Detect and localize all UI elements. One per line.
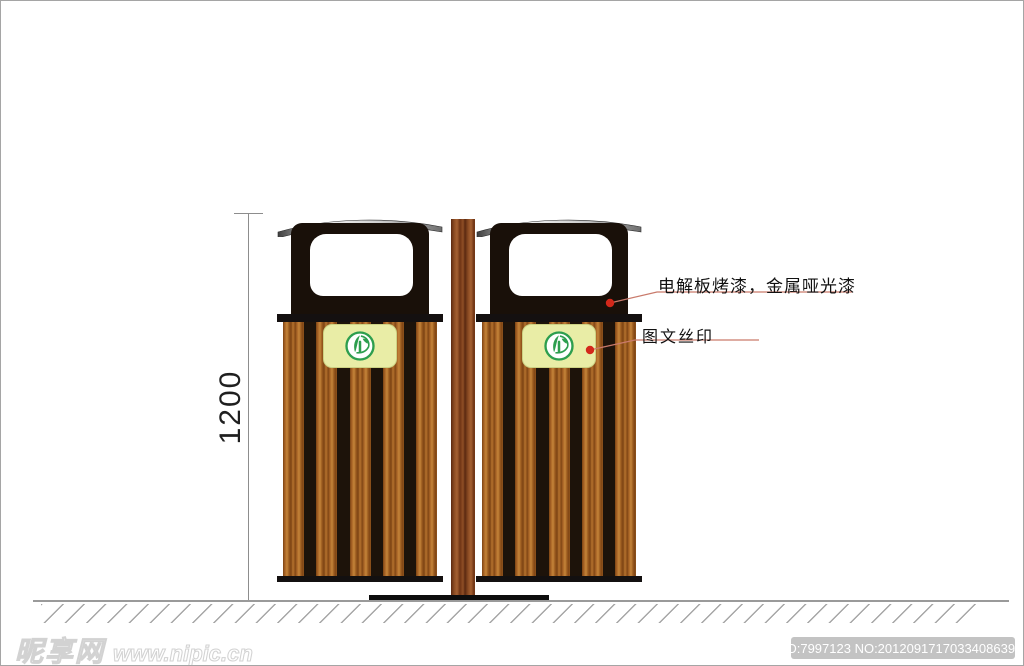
trash-bin-left: [279, 215, 441, 583]
ground-line: [33, 600, 1009, 602]
bin-bottom-rail: [476, 576, 642, 582]
dimension-top-tick: [234, 213, 263, 214]
design-drawing-canvas: 1200: [0, 0, 1024, 666]
wood-slat: [482, 322, 503, 576]
bin-bottom-rail: [277, 576, 443, 582]
ground-hatch: [41, 604, 976, 623]
eco-plaque: [522, 324, 596, 368]
center-post: [451, 219, 475, 602]
watermark: 昵享网 www.nipic.cn: [15, 630, 253, 666]
watermark-site-url: www.nipic.cn: [113, 641, 253, 666]
watermark-site-name: 昵享网: [15, 630, 105, 666]
callout-label-silkscreen: 图文丝印: [642, 323, 714, 347]
image-id-badge: ID:7997123 NO:20120917170334086396: [791, 637, 1015, 659]
dimension-label: 1200: [214, 370, 248, 445]
eco-plaque: [323, 324, 397, 368]
bin-flange: [476, 314, 642, 322]
wood-slat: [283, 322, 304, 576]
wood-slat: [416, 322, 437, 576]
trash-bin-right: [478, 215, 640, 583]
callout-label-paint: 电解板烤漆，金属哑光漆: [658, 272, 856, 297]
bin-flange: [277, 314, 443, 322]
wood-slat: [615, 322, 636, 576]
bin-opening: [310, 234, 413, 296]
eco-logo-icon: [541, 328, 577, 364]
dimension-line: [248, 213, 249, 601]
bin-opening: [509, 234, 612, 296]
eco-logo-icon: [342, 328, 378, 364]
